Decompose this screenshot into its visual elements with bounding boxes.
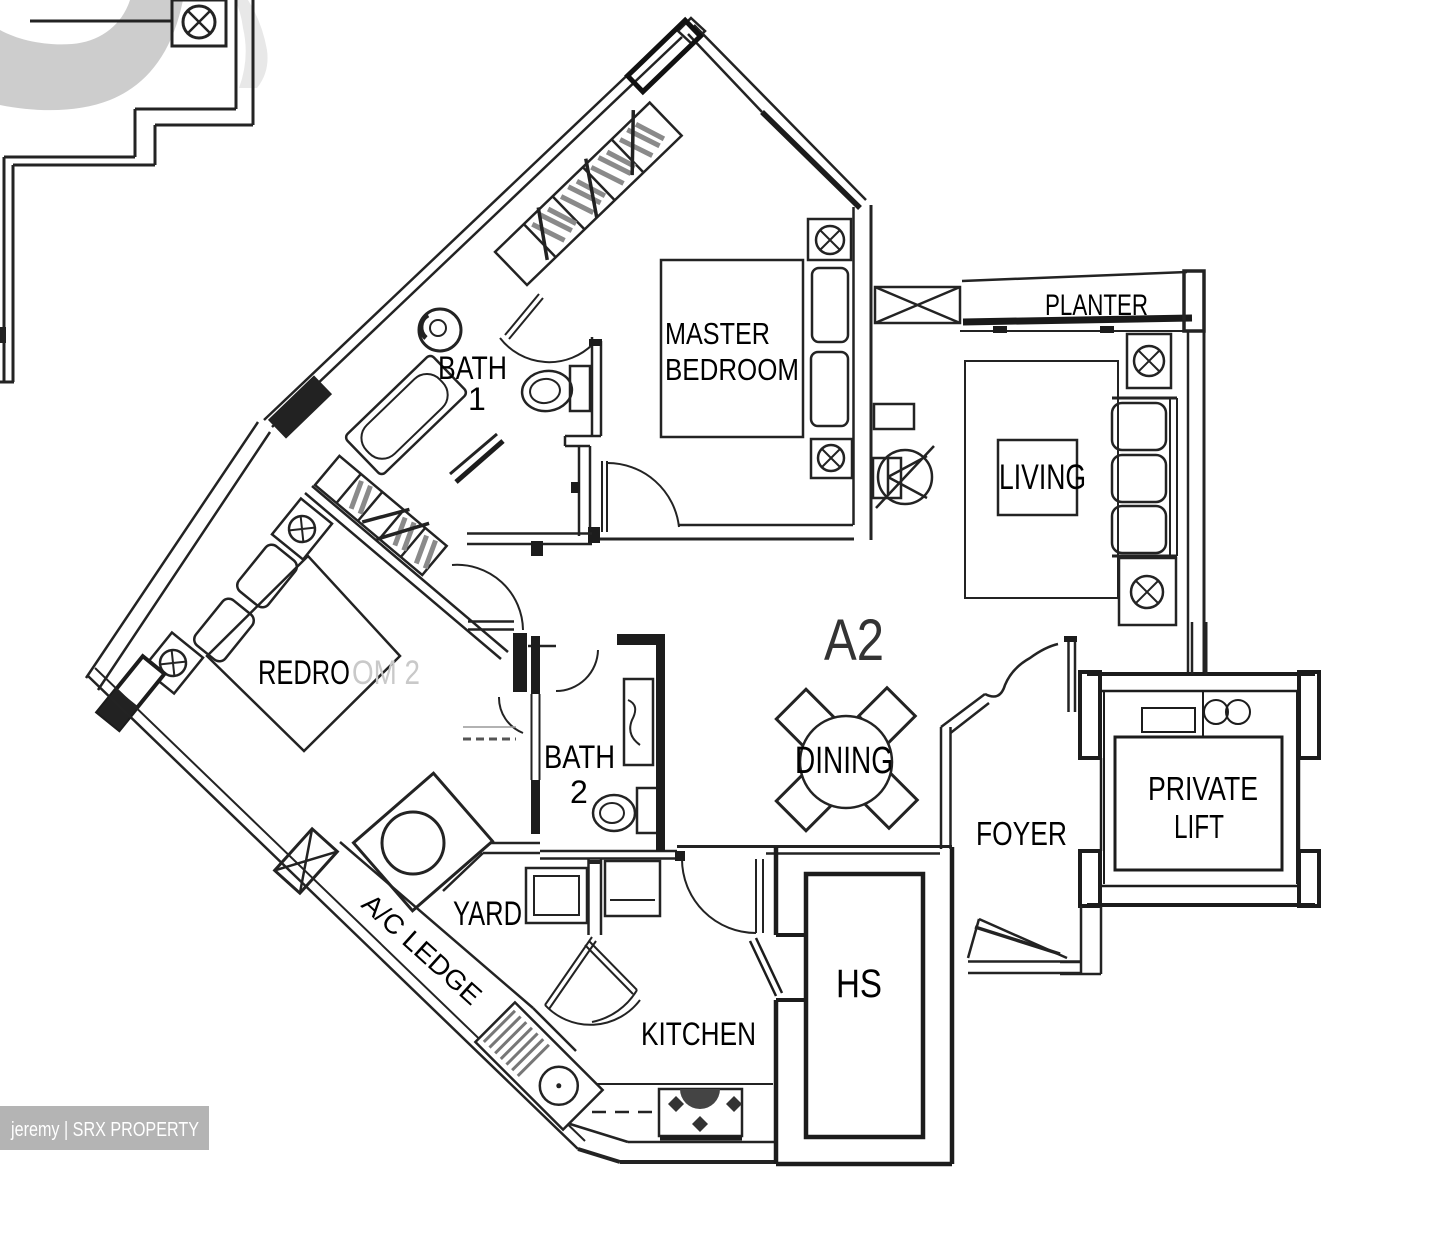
svg-text:DINING: DINING: [795, 740, 893, 782]
svg-text:1: 1: [468, 381, 486, 417]
svg-text:FOYER: FOYER: [976, 815, 1067, 852]
svg-text:A2: A2: [824, 608, 884, 673]
svg-text:2: 2: [570, 774, 588, 810]
svg-text:KITCHEN: KITCHEN: [641, 1016, 756, 1052]
svg-text:PRIVATE: PRIVATE: [1148, 770, 1258, 807]
svg-text:BATH: BATH: [544, 739, 615, 775]
svg-text:YARD: YARD: [453, 895, 522, 933]
svg-text:HS: HS: [836, 962, 882, 1006]
svg-text:MASTER: MASTER: [665, 316, 770, 351]
svg-text:jeremy | SRX PROPERTY: jeremy | SRX PROPERTY: [10, 1119, 199, 1141]
svg-text:PLANTER: PLANTER: [1045, 289, 1148, 322]
svg-text:REDRO: REDRO: [258, 654, 350, 692]
svg-text:BEDROOM: BEDROOM: [665, 352, 799, 387]
svg-text:OM 2: OM 2: [352, 654, 420, 692]
svg-text:LIVING: LIVING: [999, 458, 1086, 497]
svg-text:LIFT: LIFT: [1174, 808, 1224, 845]
